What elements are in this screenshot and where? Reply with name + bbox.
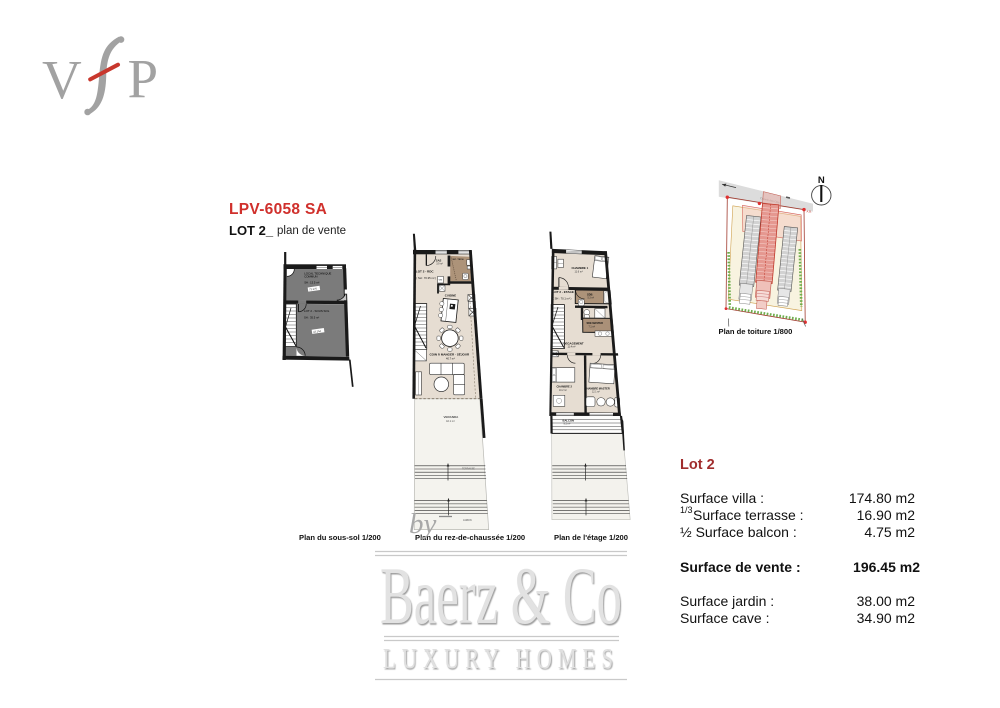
svg-text:7.1 m²: 7.1 m² — [589, 325, 596, 328]
svg-text:16.90 m2: 16.90 m2 — [857, 507, 916, 523]
svg-text:3.9 m²: 3.9 m² — [436, 263, 443, 266]
svg-text:38.00 m2: 38.00 m2 — [857, 593, 916, 609]
svg-text:JARDIN: JARDIN — [463, 519, 472, 522]
svg-text:Lot 2: Lot 2 — [680, 457, 715, 473]
svg-text:CHAMBRE 1: CHAMBRE 1 — [572, 266, 589, 270]
svg-text:plan de vente: plan de vente — [277, 225, 346, 237]
svg-text:CHAMBRE MASTER: CHAMBRE MASTER — [585, 386, 610, 390]
svg-text:A.B.: A.B. — [807, 210, 813, 214]
svg-text:SH : 35.5 m²: SH : 35.5 m² — [304, 315, 319, 319]
svg-text:COIN À MANGER - SÉJOUR: COIN À MANGER - SÉJOUR — [430, 352, 471, 357]
svg-text:Surface cave :: Surface cave : — [680, 610, 770, 626]
svg-text:LUXURY HOMES: LUXURY HOMES — [383, 644, 619, 675]
svg-text:11.6 m²: 11.6 m² — [575, 270, 583, 273]
svg-text:( SH : 70.1 m² ): ( SH : 70.1 m² ) — [553, 297, 571, 301]
svg-text:Surface villa :: Surface villa : — [680, 490, 764, 506]
svg-text:CUISINE: CUISINE — [445, 293, 456, 297]
svg-text:9.5 m²: 9.5 m² — [564, 423, 571, 426]
svg-text:11.4 m²: 11.4 m² — [568, 346, 576, 349]
svg-text:196.45 m2: 196.45 m2 — [853, 559, 920, 575]
svg-text:V: V — [42, 49, 82, 110]
svg-text:Baerz & Co: Baerz & Co — [380, 550, 622, 641]
svg-text:WM: WM — [439, 280, 443, 282]
svg-text:42.1 m²: 42.1 m² — [446, 419, 455, 423]
svg-text:SH : 13.5 m²: SH : 13.5 m² — [304, 281, 319, 285]
svg-text:LOT 2 - SOUS SOL: LOT 2 - SOUS SOL — [304, 309, 330, 313]
svg-text:WC. TECH.: WC. TECH. — [453, 259, 465, 261]
svg-text:LOT 2_: LOT 2_ — [229, 223, 274, 238]
svg-text:COMMUN: COMMUN — [304, 275, 317, 279]
svg-text:VERANDA: VERANDA — [444, 415, 460, 419]
svg-text:( SH : 70.35 m² ): ( SH : 70.35 m² ) — [416, 276, 436, 280]
svg-text:LPV-6058 SA: LPV-6058 SA — [229, 201, 327, 218]
svg-text:Surface de vente :: Surface de vente : — [680, 559, 801, 575]
svg-text:LOT 2 - ETAGE: LOT 2 - ETAGE — [553, 290, 574, 294]
svg-text:SDE MASTER: SDE MASTER — [587, 322, 604, 325]
svg-text:TERRASSE: TERRASSE — [462, 468, 475, 471]
svg-text:SDB: SDB — [587, 293, 593, 297]
svg-text:CHAMBRE 2: CHAMBRE 2 — [557, 385, 573, 389]
svg-text:Surface jardin :: Surface jardin : — [680, 593, 774, 609]
svg-text:P: P — [128, 48, 159, 109]
svg-text:174.80 m2: 174.80 m2 — [849, 490, 915, 506]
svg-text:5.3 m²: 5.3 m² — [588, 297, 595, 300]
svg-text:Plan du sous-sol 1/200: Plan du sous-sol 1/200 — [299, 533, 381, 542]
svg-text:LOT 2 - RDC: LOT 2 - RDC — [416, 269, 434, 273]
svg-text:by: by — [409, 508, 437, 540]
svg-text:10.2 m²: 10.2 m² — [559, 389, 567, 392]
svg-text:4.75 m2: 4.75 m2 — [864, 524, 915, 540]
svg-text:40.7 m²: 40.7 m² — [446, 356, 455, 360]
svg-text:34.90 m2: 34.90 m2 — [857, 610, 916, 626]
svg-text:N: N — [818, 175, 825, 186]
svg-text:Plan de l'étage 1/200: Plan de l'étage 1/200 — [554, 533, 628, 542]
svg-text:12.1 m²: 12.1 m² — [592, 391, 600, 394]
svg-text:Plan de toiture 1/800: Plan de toiture 1/800 — [719, 327, 793, 336]
svg-text:½ Surface balcon :: ½ Surface balcon : — [680, 524, 797, 540]
svg-text:1/3Surface terrasse :: 1/3Surface terrasse : — [680, 505, 804, 523]
